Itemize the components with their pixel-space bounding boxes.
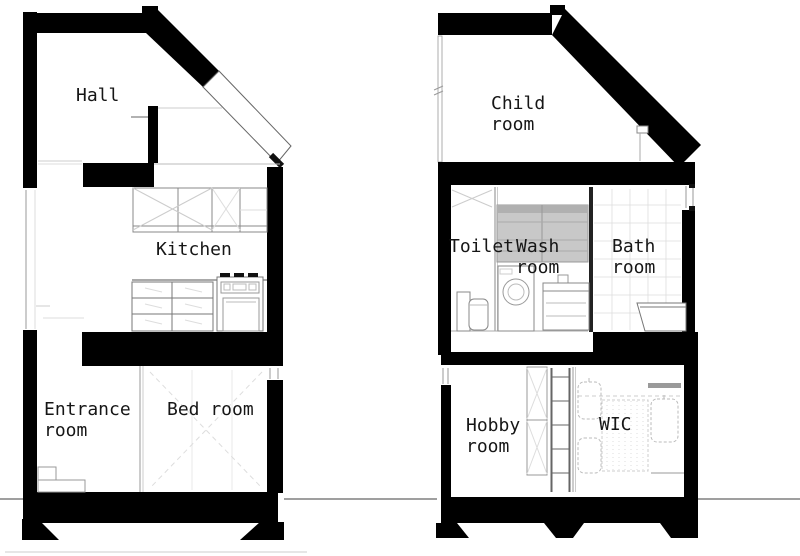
room-label-entrance: Entrance room (44, 399, 131, 441)
foundation-foot (660, 523, 698, 538)
right-wall-lower (684, 365, 698, 497)
right-wall-lower (267, 380, 283, 493)
hanging-clothes (578, 382, 601, 419)
toilet-fixture (457, 292, 488, 331)
hanging-clothes (578, 438, 601, 473)
foundation-foot (436, 523, 469, 538)
right-wall-upper (267, 167, 283, 332)
wash-bath-partition (589, 187, 593, 332)
bathtub (637, 303, 686, 331)
hobby-cabinet (527, 367, 547, 475)
hall-half-wall (148, 106, 158, 163)
left-wall-lower (441, 385, 451, 497)
roof-ridge-bar (23, 13, 158, 33)
bath-window-cap (689, 184, 695, 188)
roof-slope-black (146, 10, 219, 87)
room-label-wash: Wash room (516, 236, 559, 278)
bath-window-cap (689, 206, 695, 211)
room-label-hobby: Hobby room (466, 415, 520, 457)
left-wall-mid (438, 185, 451, 355)
room-label-wic: WIC (599, 414, 632, 435)
entrance-step (38, 480, 85, 492)
left-wall-lower (23, 330, 37, 523)
room-label-child: Child room (491, 93, 545, 135)
kitchen-floor-slab (82, 332, 283, 366)
roof-fixture (637, 126, 648, 133)
wash-vanity (543, 275, 589, 330)
kitchen-range (217, 273, 263, 331)
roof-skylight-band (203, 71, 291, 163)
ground-floor-slab (37, 492, 278, 523)
right-building-structure (434, 5, 701, 538)
roof-ridge-bar (438, 13, 552, 35)
child-floor-slab (438, 162, 695, 185)
child-left-wall (438, 36, 442, 162)
kitchen-upper-cabinets (133, 188, 267, 232)
room-label-toilet: Toilet (449, 236, 514, 257)
hall-floor-slab (83, 163, 154, 187)
foundation-foot (240, 522, 284, 540)
room-label-kitchen: Kitchen (156, 239, 232, 260)
roof-ridge-notch (142, 6, 158, 16)
roof-slope-black (552, 9, 701, 167)
room-label-bedroom: Bed room (167, 399, 254, 420)
bath-raised-floor (593, 332, 698, 365)
foundation-foot (544, 523, 584, 538)
section-drawing (0, 0, 800, 556)
floorplan-canvas: Hall Kitchen Entrance room Bed room Chil… (0, 0, 800, 556)
room-label-bath: Bath room (612, 236, 655, 278)
room-label-hall: Hall (76, 85, 119, 106)
loft-ladder (551, 368, 570, 492)
clothes-rod (648, 383, 681, 388)
entrance-step (38, 467, 56, 480)
ground-floor-slab (441, 497, 698, 523)
left-wall-upper (23, 12, 37, 188)
left-building-structure (0, 6, 800, 552)
hanging-clothes (651, 399, 678, 442)
